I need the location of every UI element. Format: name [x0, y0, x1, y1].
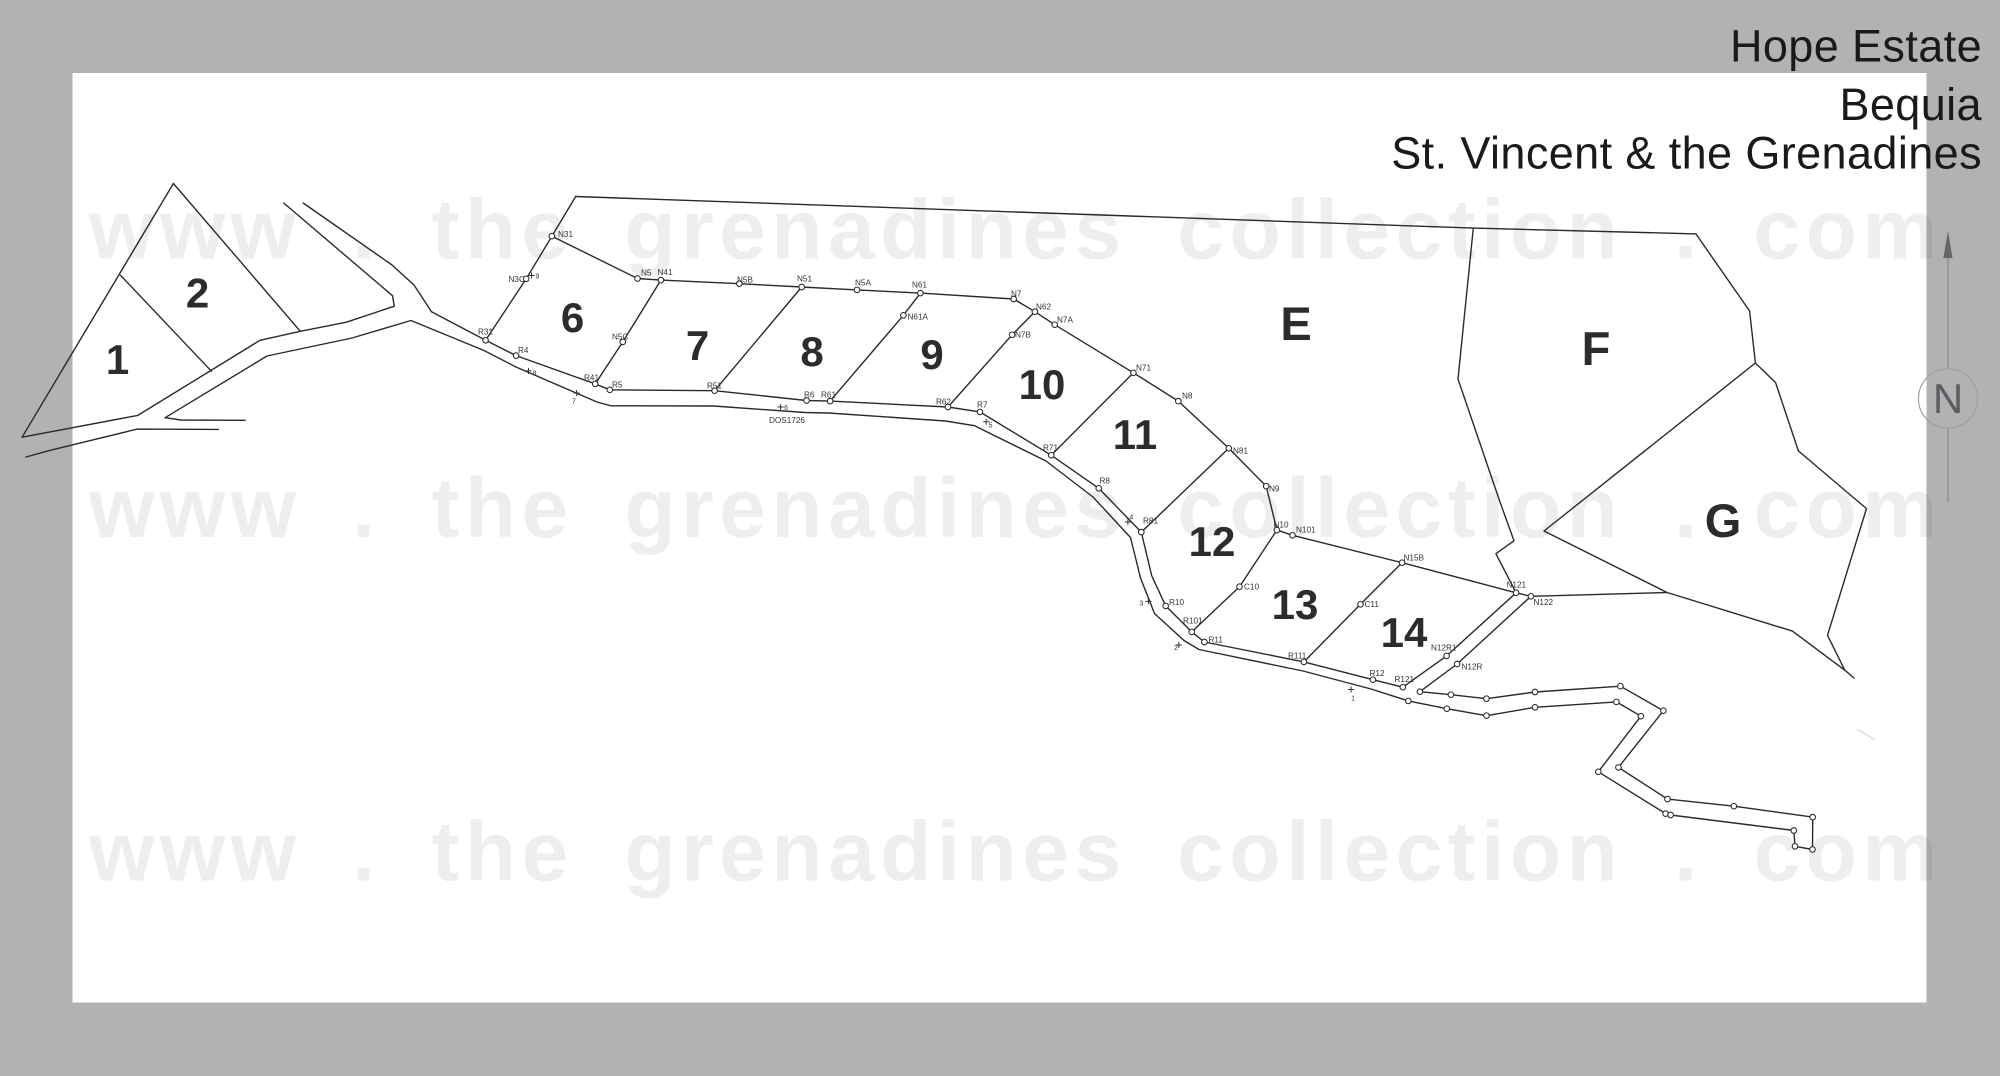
svg-text:N12R: N12R [1462, 663, 1483, 672]
svg-text:R41: R41 [584, 374, 599, 383]
svg-text:R5: R5 [612, 381, 623, 390]
svg-text:N51: N51 [797, 275, 812, 284]
svg-text:N7B: N7B [1015, 331, 1031, 340]
svg-text:3: 3 [1139, 600, 1143, 607]
svg-text:St. Vincent & the Grenadines: St. Vincent & the Grenadines [1391, 128, 1982, 179]
svg-text:R31: R31 [478, 328, 493, 337]
svg-text:6: 6 [784, 405, 788, 412]
svg-text:12: 12 [1189, 518, 1236, 565]
svg-text:R10: R10 [1169, 598, 1184, 607]
svg-text:N41: N41 [658, 268, 673, 277]
svg-text:N9: N9 [1269, 485, 1280, 494]
svg-text:N71: N71 [1136, 364, 1151, 373]
svg-text:1: 1 [1351, 696, 1355, 703]
svg-text:13: 13 [1272, 581, 1319, 628]
svg-text:N15B: N15B [1404, 554, 1425, 563]
svg-text:E: E [1280, 297, 1311, 350]
svg-text:11: 11 [1113, 411, 1157, 458]
svg-text:www . the grenadines collectio: www . the grenadines collection . com [88, 461, 1942, 555]
svg-text:R11: R11 [1209, 636, 1224, 645]
svg-text:C11: C11 [1365, 600, 1380, 609]
svg-text:R7: R7 [977, 401, 988, 410]
svg-text:F: F [1582, 322, 1611, 375]
svg-text:R6: R6 [804, 391, 815, 400]
svg-text:N12R1: N12R1 [1431, 644, 1457, 653]
svg-text:R61: R61 [821, 391, 836, 400]
svg-text:R12: R12 [1370, 669, 1385, 678]
svg-text:R101: R101 [1183, 617, 1203, 626]
svg-text:7: 7 [572, 399, 576, 406]
svg-text:N101: N101 [1296, 526, 1316, 535]
svg-text:R71: R71 [1043, 444, 1058, 453]
svg-text:8: 8 [533, 370, 537, 377]
svg-text:R121: R121 [1395, 675, 1415, 684]
svg-text:N: N [1933, 375, 1963, 422]
svg-text:R111: R111 [1288, 652, 1307, 661]
svg-text:R51: R51 [707, 382, 722, 391]
svg-text:G: G [1705, 494, 1742, 547]
svg-text:10: 10 [1019, 361, 1066, 408]
svg-text:www . the grenadines collectio: www . the grenadines collection . com [88, 805, 1942, 899]
svg-text:N5B: N5B [737, 276, 753, 285]
svg-text:9: 9 [536, 274, 540, 281]
svg-text:6: 6 [561, 294, 584, 341]
svg-text:N5C: N5C [612, 333, 628, 342]
svg-text:N10: N10 [1274, 521, 1289, 530]
svg-text:9: 9 [920, 331, 943, 378]
svg-text:www . the grenadines collectio: www . the grenadines collection . com [88, 183, 1942, 277]
svg-text:N5: N5 [641, 269, 652, 278]
svg-text:N8: N8 [1182, 392, 1193, 401]
svg-text:N62: N62 [1036, 303, 1051, 312]
svg-text:N7A: N7A [1057, 316, 1073, 325]
svg-text:N3C: N3C [509, 275, 525, 284]
svg-text:N31: N31 [558, 230, 573, 239]
svg-text:C10: C10 [1244, 583, 1259, 592]
svg-text:R62: R62 [936, 398, 951, 407]
svg-text:N121: N121 [1507, 581, 1527, 590]
svg-text:2: 2 [186, 270, 209, 317]
svg-text:N61: N61 [912, 281, 927, 290]
svg-text:N7: N7 [1011, 290, 1022, 299]
svg-text:4: 4 [1129, 515, 1133, 522]
svg-text:N122: N122 [1534, 598, 1554, 607]
svg-text:N81: N81 [1233, 447, 1248, 456]
svg-text:8: 8 [800, 328, 823, 375]
svg-text:R8: R8 [1100, 477, 1111, 486]
svg-text:R81: R81 [1143, 517, 1158, 526]
svg-text:DOS1726: DOS1726 [769, 416, 805, 425]
svg-text:5: 5 [989, 423, 993, 430]
svg-text:2: 2 [1174, 645, 1178, 652]
svg-text:14: 14 [1381, 609, 1428, 656]
svg-text:N61A: N61A [908, 313, 929, 322]
svg-text:Bequia: Bequia [1839, 79, 1982, 130]
svg-text:Hope Estate: Hope Estate [1730, 21, 1982, 72]
svg-text:N5A: N5A [855, 279, 871, 288]
svg-text:7: 7 [686, 322, 709, 369]
svg-text:R4: R4 [518, 346, 529, 355]
svg-text:1: 1 [106, 336, 129, 383]
